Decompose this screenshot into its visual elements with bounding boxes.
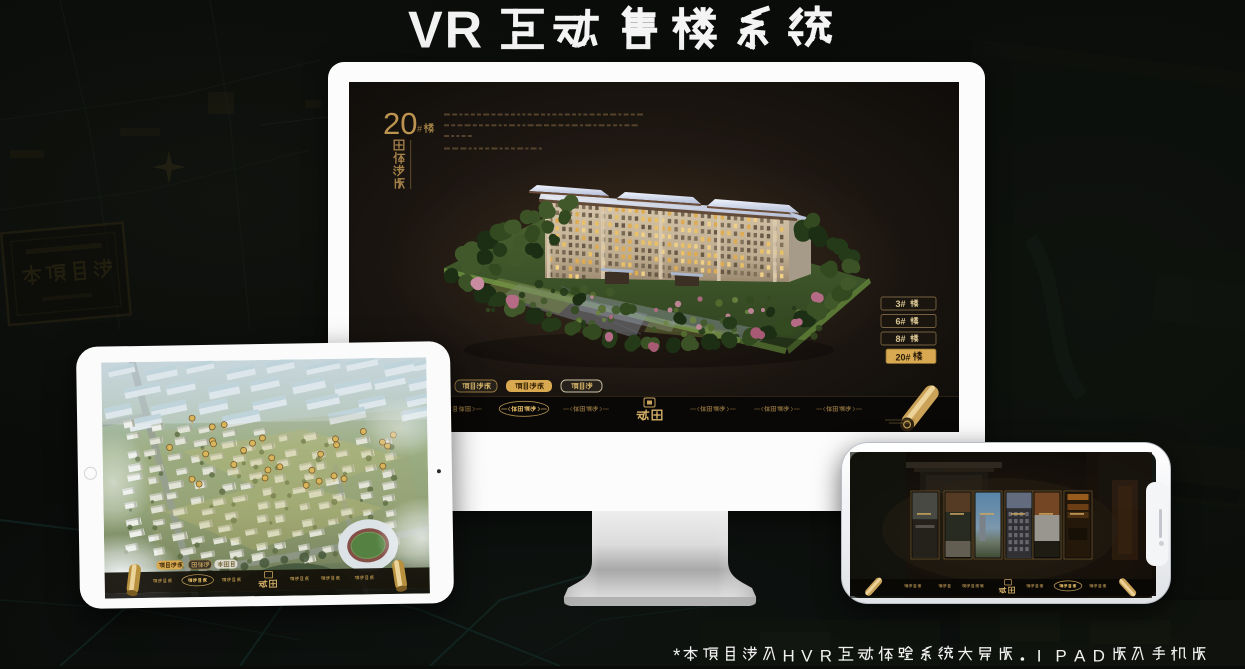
svg-text:20#: 20#: [895, 352, 910, 362]
svg-text:H: H: [783, 647, 795, 666]
svg-text:P: P: [1055, 647, 1066, 666]
svg-text:8#: 8#: [895, 334, 905, 344]
svg-text:VR: VR: [408, 2, 484, 60]
svg-text:6#: 6#: [895, 316, 905, 326]
svg-text:R: R: [820, 647, 832, 666]
svg-text:V: V: [801, 647, 813, 666]
svg-text:D: D: [1093, 647, 1105, 666]
svg-text:*: *: [673, 646, 681, 667]
svg-text:I: I: [1037, 647, 1042, 666]
svg-text:A: A: [1074, 647, 1086, 666]
svg-text:#: #: [417, 124, 422, 134]
svg-text:3#: 3#: [895, 299, 905, 309]
svg-text:20: 20: [383, 106, 417, 141]
